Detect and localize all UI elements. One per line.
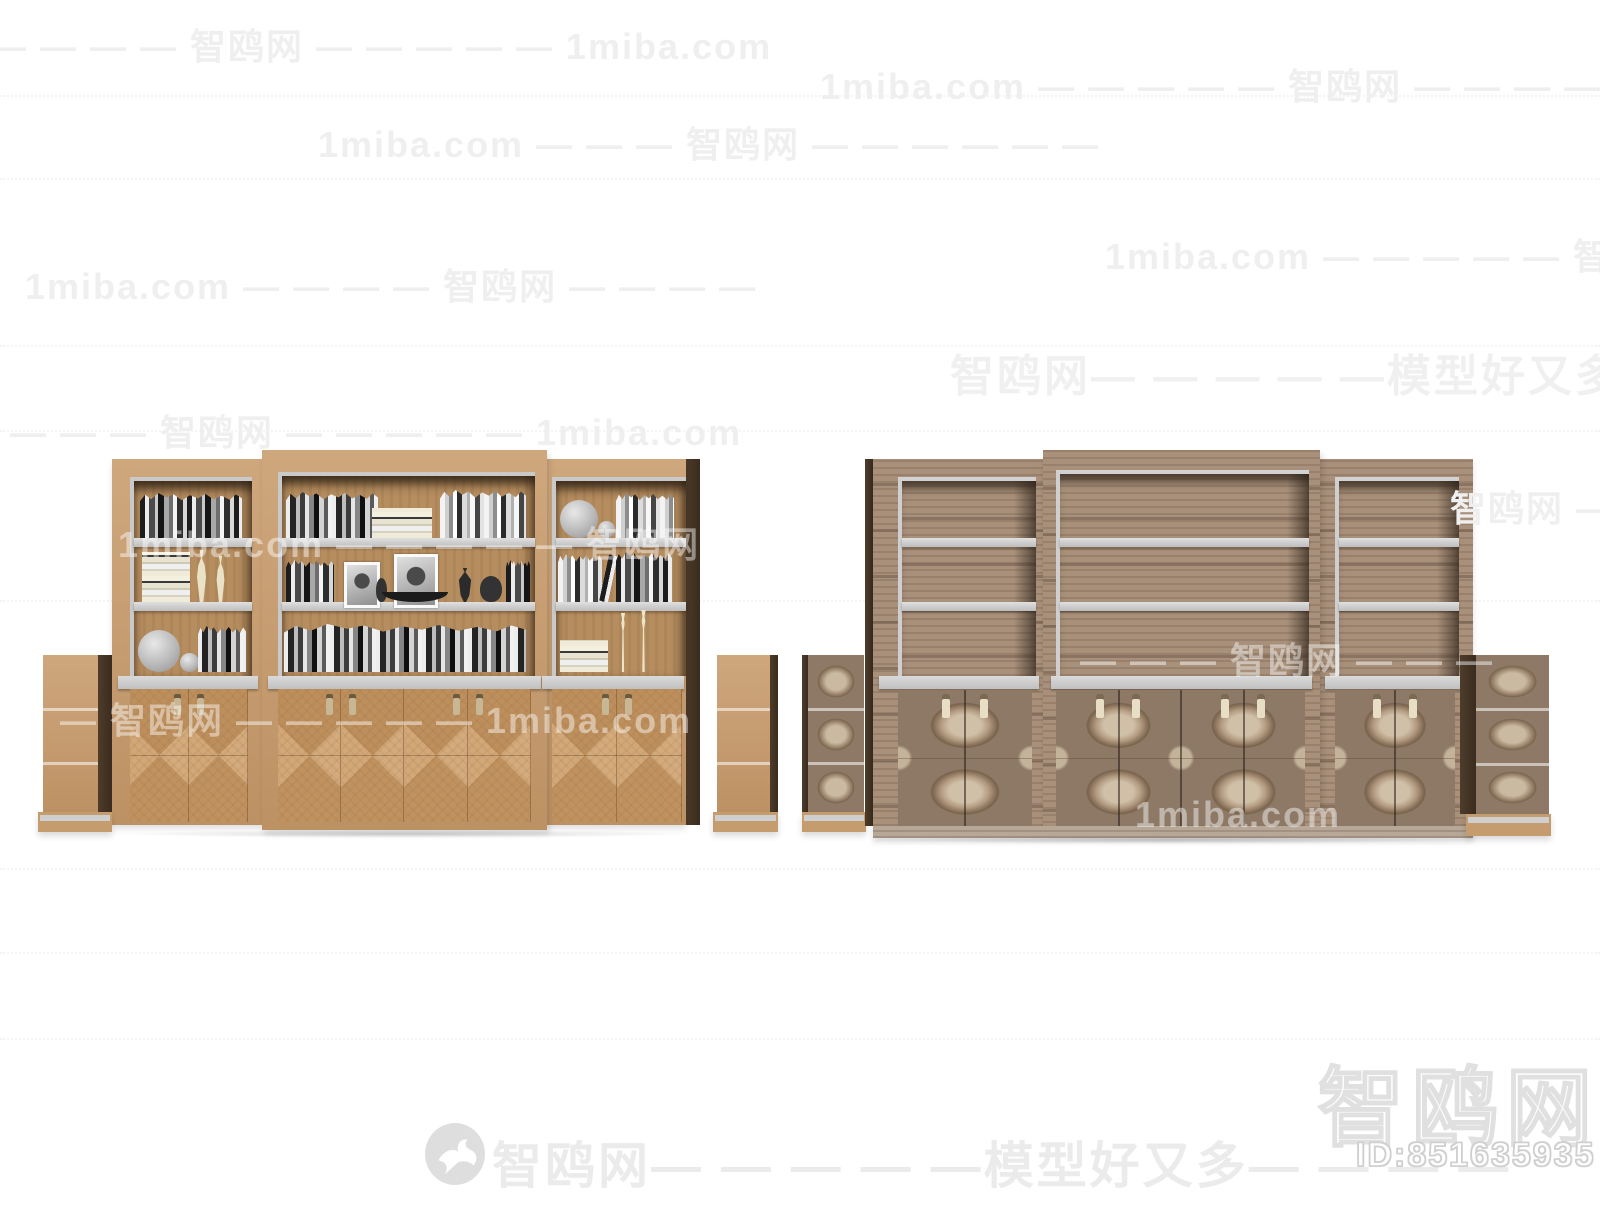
small-vase [376, 578, 387, 602]
dashed-texture-line [0, 868, 1600, 870]
cabinet-drawer-stack [717, 655, 770, 812]
watermark-banner: 智鸥网— — — — —模型好又多— — — — [950, 340, 1600, 404]
shelf-opening [278, 472, 535, 676]
decor-sphere [180, 653, 199, 672]
watermark-text: — — — — 智鸥网 — — — — — 1miba.com [0, 404, 742, 456]
floor-shadow [865, 836, 1473, 844]
watermark-text: 智鸥网 — — — [1450, 480, 1600, 532]
cabinet-door-group [1335, 690, 1455, 826]
decor-bowl [382, 592, 448, 602]
shelf-opening [130, 477, 252, 676]
watermark-text: 1miba.com — — — 智鸥网 — — — — — — [318, 116, 1100, 168]
drawer-gap [1476, 763, 1549, 766]
shelf-board [902, 602, 1036, 611]
photo-frame [344, 562, 380, 608]
door-handle [980, 694, 988, 718]
decor-sphere [138, 630, 180, 672]
door-seam [898, 758, 1032, 759]
bookcase-side-panel [684, 459, 700, 825]
shelf-board [134, 602, 252, 611]
dashed-texture-line [0, 952, 1600, 954]
plinth-strip [804, 815, 864, 821]
counter-band [542, 676, 684, 689]
door-seam [278, 755, 531, 756]
watermark-text: 1miba.com — — — — — 智鸥网 — — — — — — [1105, 228, 1600, 280]
opening-depth-shadow [1014, 481, 1036, 676]
product-preview-canvas: — — — — — 智鸥网 — — — — — 1miba.com 1miba.… [0, 0, 1600, 1213]
black-vase [454, 568, 476, 602]
watermark-text: 1miba.com — — — — — 智鸥网 — — — — — 1miba.… [820, 58, 1600, 110]
shelf-board [1060, 538, 1309, 547]
watermark-text: 1miba.com — — — — 智鸥网 — — — — [25, 258, 757, 310]
door-handle [1373, 694, 1381, 718]
cabinet-plinth [38, 812, 112, 832]
cabinet-side-panel [770, 655, 778, 812]
watermark-text: 1miba.com [1135, 794, 1341, 836]
seagull-icon [424, 1122, 486, 1186]
footer-watermark: 智鸥网— — — — —模型好又多— — — — [424, 1122, 1124, 1192]
left-bookcase-unit [112, 450, 700, 835]
drawer-gap [717, 708, 770, 711]
side-cabinet-light-right [713, 655, 778, 835]
watermark-text: 1miba.com — — — — — 智鸥网 — — — [118, 516, 850, 568]
drawer-gap [808, 708, 864, 711]
shelf-board [556, 602, 686, 611]
shelf-opening [552, 477, 686, 676]
bookcase-side-panel [865, 459, 873, 826]
dashed-texture-line [0, 178, 1600, 180]
door-handle [1221, 694, 1229, 718]
model-id-label: ID:851635935 [1356, 1136, 1596, 1175]
counter-band [268, 676, 541, 689]
drawer-gap [808, 762, 864, 765]
watermark-text: — 智鸥网 — — — — — 1miba.com [60, 692, 692, 744]
door-seam [1056, 758, 1305, 759]
door-handle [1257, 694, 1265, 718]
shelf-opening-empty [898, 477, 1036, 676]
candlestick [636, 610, 651, 672]
door-handle [1096, 694, 1104, 718]
drawer-gap [717, 762, 770, 765]
cabinet-plinth [802, 812, 866, 832]
watermark-text: — — — 智鸥网 — — — [1080, 632, 1494, 684]
door-handle [942, 694, 950, 718]
side-cabinet-pattern-left [802, 655, 866, 835]
book-row [284, 624, 526, 672]
plinth-strip [40, 815, 110, 821]
cabinet-drawer-stack [808, 655, 864, 812]
shelf-board [902, 538, 1036, 547]
door-handle [1132, 694, 1140, 718]
floor-shadow [112, 830, 700, 838]
stacked-books [560, 640, 608, 672]
shelf-board [1060, 602, 1309, 611]
plinth-strip [1468, 817, 1549, 823]
drawer-gap [43, 762, 98, 765]
book-row [198, 626, 246, 672]
plinth-strip [715, 815, 776, 821]
shelf-board [1339, 538, 1459, 547]
cabinet-plinth [1466, 814, 1551, 836]
watermark-text: — — — — — 智鸥网 — — — — — 1miba.com [0, 18, 772, 70]
door-seam [130, 755, 248, 756]
counter-band [118, 676, 258, 689]
candlestick [616, 613, 630, 672]
shelf-board [1339, 602, 1459, 611]
counter-band [879, 676, 1039, 689]
door-seam [552, 755, 682, 756]
cabinet-door-group [898, 690, 1032, 826]
door-seam [1335, 758, 1455, 759]
cabinet-plinth [713, 812, 778, 832]
drawer-gap [1476, 708, 1549, 711]
side-cabinet-light-left [38, 655, 112, 835]
black-vase [480, 576, 502, 602]
door-handle [1409, 694, 1417, 718]
